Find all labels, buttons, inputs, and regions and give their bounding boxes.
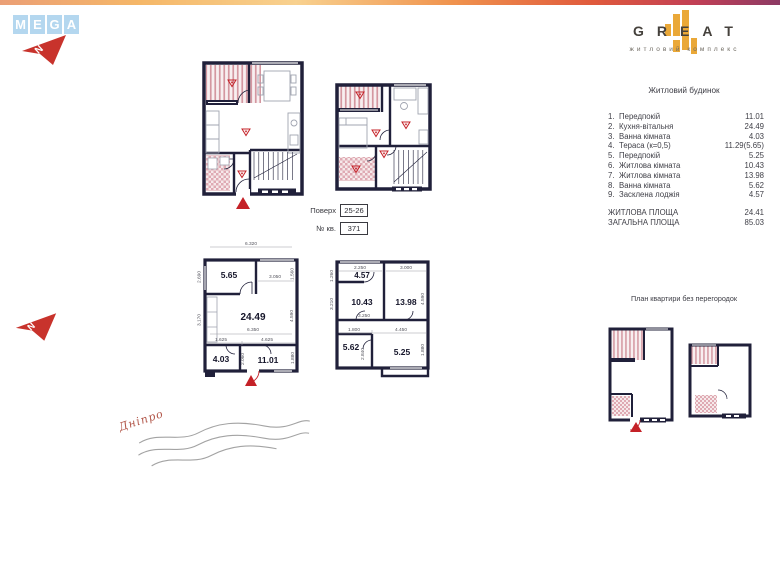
room-area-label: 10.43 [351,297,373,307]
row-name: Передпокій [619,151,749,161]
room-area-list: Житловий будинок 1.Передпокій11.01 2.Кух… [598,86,770,228]
dim-text: 3.050 [269,274,281,280]
room-list-row: 9.Засклена лоджія4.57 [598,190,770,200]
dim-text: 1.880 [420,344,426,356]
room-area-label: 5.65 [221,270,238,280]
small-plan-upper [686,338,756,429]
row-value: 4.57 [749,190,764,200]
vent-mark-icon [402,122,410,129]
no-partitions-title: План квартири без перегородок [598,294,770,303]
row-num: 7. [608,171,619,181]
room-area-label: 4.57 [354,271,370,280]
loggia-hatch [691,346,717,364]
mega-letter-block: G [47,15,62,34]
row-value: 11.01 [745,112,764,122]
row-value: 11.29(5.65) [725,141,764,151]
wardrobe [418,88,428,144]
desk-and-chair [394,88,416,110]
row-num: 8. [608,181,619,191]
bathroom-tiles [612,396,630,416]
listing-floorplan-image: M E G A N N GREAT житловий комплекс Житл… [0,0,780,575]
dim-text: 4.625 [261,337,273,343]
top-gradient-bar [0,0,780,5]
small-plan-lower [604,324,678,439]
floor-plan-upper-dimensioned: 2.250 3.000 1.260 3.210 4.590 3.250 1.80… [326,254,438,389]
vent-mark-icon [372,130,380,137]
terrace-window-band [611,358,635,362]
dim-text: 2.840 [360,348,366,360]
entry-gap [236,189,250,197]
row-num: 4. [608,141,619,151]
mega-letter-block: A [64,15,79,34]
total-value: 85.03 [744,218,764,228]
row-value: 5.25 [749,151,764,161]
row-name: Передпокій [619,112,745,122]
room-area-label: 11.01 [258,355,279,365]
dim-text: 3.000 [400,265,412,271]
dim-text: 2.690 [197,271,203,283]
entry-gap [247,368,259,374]
room-area-label: 4.03 [213,354,230,364]
row-value: 10.43 [744,161,764,171]
row-value: 4.03 [749,132,764,142]
dim-text: 4.590 [420,293,426,305]
room-list-row: 3.Ванна кімната4.03 [598,132,770,142]
bed [339,118,367,148]
row-name: Кухня-вітальня [619,122,744,132]
entry-arrow [630,422,642,432]
dim-text: 1.880 [290,352,296,364]
great-logo: GREAT житловий комплекс [608,8,758,66]
dim-text: 1.260 [329,270,335,282]
row-num: 5. [608,151,619,161]
terrace-hatch [611,330,643,360]
floor-plan-upper-furnished [330,78,434,201]
great-logo-title: GREAT [608,23,758,39]
wardrobe [207,297,217,342]
kitchen-counter [288,113,300,153]
dim-text: 6.350 [247,327,259,333]
stairs [254,152,297,180]
dim-text: 6.320 [245,241,257,247]
row-num: 3. [608,132,619,142]
floor-plan-lower-dimensioned: 6.320 1.560 3.050 2.690 3.170 4.590 6.35… [196,234,326,411]
row-value: 5.62 [749,181,764,191]
dim-text: 3.210 [329,298,335,310]
outer-walls [337,262,428,368]
room-list-totals: ЖИТЛОВА ПЛОЩА24.41 ЗАГАЛЬНА ПЛОЩА85.03 [598,208,770,228]
mega-logo: M E G A [13,15,79,34]
room-area-label: 13.98 [395,297,417,307]
entry-gap [630,417,640,423]
room-area-label: 24.49 [240,312,265,323]
room-list-title: Житловий будинок [598,86,770,95]
row-name: Засклена лоджія [619,190,749,200]
apartment-value-box: 371 [340,222,368,235]
total-name: ЗАГАЛЬНА ПЛОЩА [608,218,744,228]
room-list-row: 4.Тераса (к=0,5)11.29(5.65) [598,141,770,151]
vent-mark-icon [380,151,388,158]
door-arc [718,390,727,399]
river-waves-icon [134,411,319,483]
dim-text: 1.625 [215,337,227,343]
north-arrow-icon: N [14,312,58,347]
north-arrow-icon: N [20,34,68,71]
wardrobe [206,111,219,153]
total-value: 24.41 [744,208,764,218]
total-row: ЗАГАЛЬНА ПЛОЩА85.03 [598,218,770,228]
room-area-label: 5.62 [343,342,360,352]
dim-text: 3.250 [358,313,370,319]
room-list-row: 7.Житлова кімната13.98 [598,171,770,181]
stairs [394,150,427,184]
room-list-row: 5.Передпокій5.25 [598,151,770,161]
dim-text: 4.590 [289,310,295,322]
wall-step [205,371,215,377]
vent-mark-icon [242,129,250,136]
floor-label: Поверх [310,206,336,215]
dim-text: 1.560 [290,268,296,280]
row-value: 24.49 [744,122,764,132]
dim-text: 2.060 [240,353,246,365]
entry-arrow [236,197,250,209]
row-name: Ванна кімната [619,181,749,191]
kitchen-table-and-chairs [258,71,296,101]
row-num: 1. [608,112,619,122]
floor-plan-lower-furnished [186,53,314,216]
row-name: Житлова кімната [619,171,744,181]
row-value: 13.98 [744,171,764,181]
vent-mark-icon [238,171,246,178]
dim-text: 1.800 [348,327,360,333]
row-num: 2. [608,122,619,132]
bathroom-tiles [695,395,717,413]
row-name: Ванна кімната [619,132,749,142]
partition-walls [337,262,428,368]
room-list-row: 2.Кухня-вітальня24.49 [598,122,770,132]
mega-letter-block: M [13,15,28,34]
room-list-row: 8.Ванна кімната5.62 [598,181,770,191]
total-name: ЖИТЛОВА ПЛОЩА [608,208,744,218]
room-list-row: 1.Передпокій11.01 [598,112,770,122]
floor-value-box: 25-26 [340,204,368,217]
row-num: 9. [608,190,619,200]
entry-arrow [245,375,257,386]
total-row: ЖИТЛОВА ПЛОЩА24.41 [598,208,770,218]
apartment-label: № кв. [316,224,336,233]
dim-text: 4.450 [395,327,407,333]
row-num: 6. [608,161,619,171]
mega-letter-block: E [30,15,45,34]
row-name: Тераса (к=0,5) [619,141,725,151]
great-logo-subtitle: житловий комплекс [608,46,758,53]
row-name: Житлова кімната [619,161,744,171]
dim-text: 3.170 [197,314,203,326]
room-area-label: 5.25 [394,347,411,357]
room-list-row: 6.Житлова кімната10.43 [598,161,770,171]
